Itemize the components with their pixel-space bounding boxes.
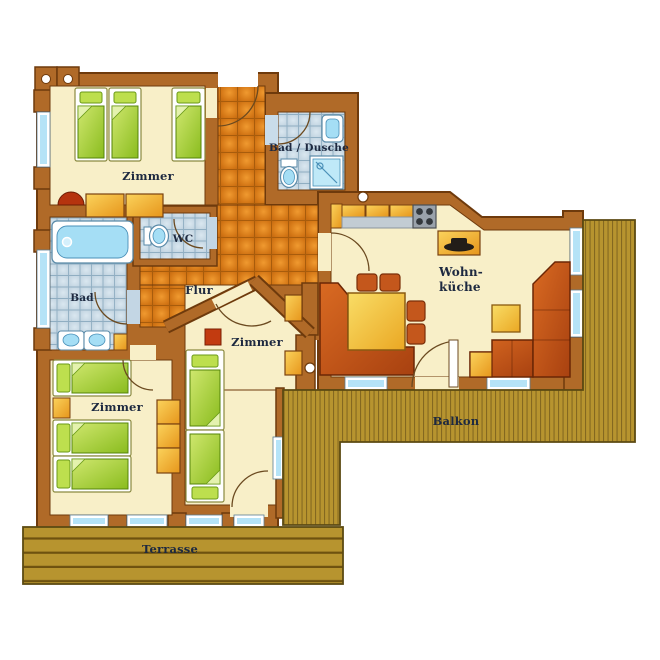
dining-table xyxy=(348,293,405,350)
label-bedroom-middle: Zimmer xyxy=(231,335,283,349)
pillow xyxy=(192,355,218,367)
wall-post-dot xyxy=(358,192,368,202)
label-shower-bath: Bad / Dusche xyxy=(269,142,349,154)
toilet xyxy=(281,159,297,167)
corner-post-dot xyxy=(42,75,51,84)
floorplan-drawing xyxy=(0,0,660,660)
wardrobe xyxy=(157,400,180,473)
kitchen-cabinet xyxy=(342,205,413,217)
kitchen-cabinet xyxy=(331,204,342,228)
label-living-kitchen: Wohn- küche xyxy=(439,265,483,295)
hallway-corridor xyxy=(218,86,265,205)
label-bathroom: Bad xyxy=(70,292,94,304)
label-wc: WC xyxy=(173,233,194,245)
label-balcony: Balkon xyxy=(433,414,480,428)
stove xyxy=(413,205,436,228)
double-sink xyxy=(58,331,110,350)
cabinet xyxy=(114,334,127,350)
label-hallway: Flur xyxy=(185,283,213,297)
nightstand xyxy=(53,398,70,418)
label-bedroom-top-left: Zimmer xyxy=(122,169,174,183)
label-bedroom-bottom-left: Zimmer xyxy=(91,400,143,414)
label-terrace: Terrasse xyxy=(142,542,198,556)
floorplan-canvas: Zimmer Bad / Dusche WC Flur Bad Zimmer Z… xyxy=(0,0,660,660)
pillow xyxy=(192,487,218,499)
coffee-table xyxy=(492,305,520,332)
door-leaf xyxy=(449,340,458,387)
kitchen-counter xyxy=(342,217,413,228)
dresser xyxy=(86,194,163,217)
pillow xyxy=(57,364,70,488)
wall-post-dot xyxy=(305,363,315,373)
wc-fixtures xyxy=(144,225,169,247)
corner-post-dot xyxy=(64,75,73,84)
stool xyxy=(205,329,221,345)
